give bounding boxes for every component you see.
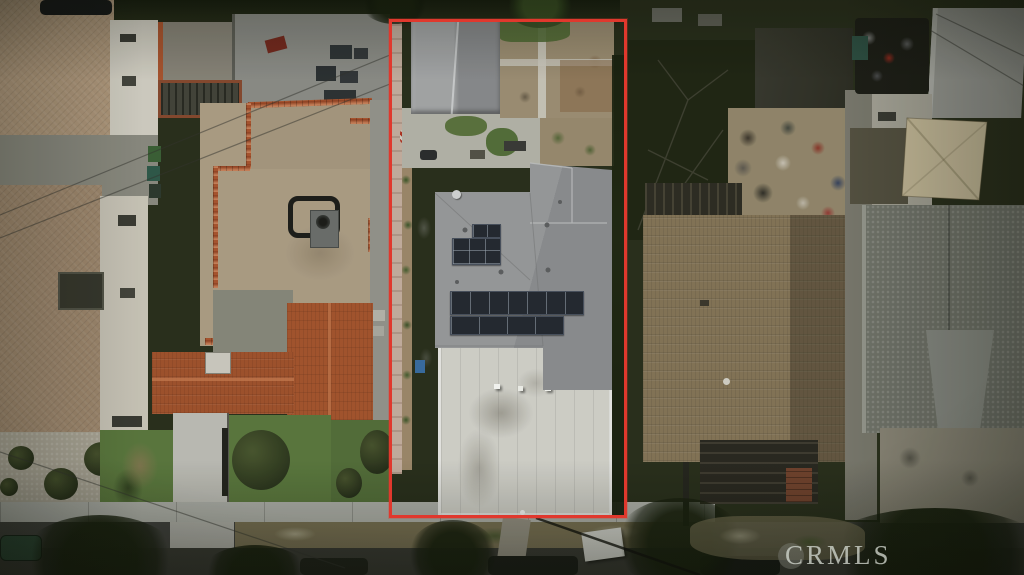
trash-bin-dark xyxy=(149,184,161,198)
front-driveway xyxy=(173,413,229,508)
yard-box xyxy=(698,14,722,26)
left-top-house-roof xyxy=(0,0,114,140)
skylight xyxy=(340,71,358,83)
border-bush xyxy=(336,468,362,498)
left-big-house-wall xyxy=(100,196,148,432)
backyard-pergola xyxy=(645,183,742,217)
driveway-apron xyxy=(170,522,234,548)
gap-ac-box xyxy=(372,326,384,336)
dumpster-teal xyxy=(852,36,868,60)
tile-trim-left xyxy=(213,166,218,288)
tile-trim-step-v xyxy=(246,103,251,169)
parked-car-dark xyxy=(300,558,368,575)
brick-chimney xyxy=(786,468,812,502)
trash-bin-green xyxy=(148,146,161,162)
front-lawn-left xyxy=(100,430,175,508)
tan-roof-upper-wing xyxy=(248,103,372,169)
left-big-house-deck xyxy=(58,272,104,310)
tile-house-flat-section xyxy=(213,290,293,360)
skylight xyxy=(316,66,336,81)
gravel-roof-smooth-patch xyxy=(920,330,1000,430)
left-big-house-window xyxy=(118,215,136,226)
crmls-watermark: CRMLS xyxy=(785,540,892,571)
gap-ac-box xyxy=(371,310,385,321)
left-big-house-window xyxy=(112,416,142,427)
lawn-tree xyxy=(232,430,290,490)
trash-bin-teal xyxy=(147,166,160,181)
tile-ridge-cap xyxy=(152,378,294,381)
wall-window xyxy=(878,112,896,121)
tile-trim-step-h xyxy=(214,166,250,171)
parked-car-top xyxy=(40,0,112,15)
left-big-house-window xyxy=(120,288,135,298)
ac-fan xyxy=(316,215,330,229)
skylight xyxy=(354,48,368,59)
shade-sail xyxy=(895,110,995,205)
front-walkway-spur xyxy=(497,516,531,561)
round-bush xyxy=(8,446,34,470)
brown-roof-dark-section xyxy=(790,215,845,462)
roof-vent xyxy=(723,378,730,385)
round-bush xyxy=(44,468,78,500)
parked-car-dark xyxy=(488,556,578,575)
fence-post-line xyxy=(222,428,228,496)
roof-vent xyxy=(700,300,709,306)
yard-box xyxy=(652,8,682,22)
property-boundary-outline xyxy=(389,19,627,518)
left-top-house-window xyxy=(122,76,136,86)
skylight xyxy=(330,45,352,59)
aerial-photo: CRMLS xyxy=(0,0,1024,575)
gable-vent-box xyxy=(205,352,231,374)
left-top-house-window xyxy=(120,34,136,42)
round-bush xyxy=(0,478,18,496)
far-right-garage-roof xyxy=(927,8,1024,118)
tile-ridge-cap xyxy=(328,303,331,421)
